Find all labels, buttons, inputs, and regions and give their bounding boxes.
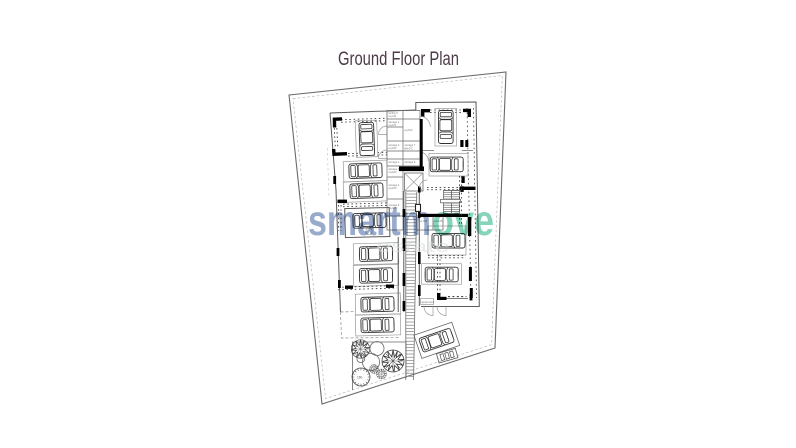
svg-text:eq.102: eq.102 xyxy=(405,128,413,132)
svg-text:160: 160 xyxy=(357,376,363,380)
svg-text:eq.104: eq.104 xyxy=(389,186,397,190)
svg-text:Ground Floor Plan: Ground Floor Plan xyxy=(338,49,459,70)
svg-text:eq.211: eq.211 xyxy=(389,114,397,118)
svg-text:storage 7: storage 7 xyxy=(405,143,416,147)
svg-text:eq.103: eq.103 xyxy=(389,170,397,174)
svg-text:BH/2*C: BH/2*C xyxy=(405,147,414,151)
svg-text:eq.101: eq.101 xyxy=(389,123,397,127)
svg-text:storage 8: storage 8 xyxy=(405,160,416,164)
svg-text:approved: approved xyxy=(422,300,435,304)
svg-text:eq.102: eq.102 xyxy=(389,146,397,150)
svg-text:storage 4: storage 4 xyxy=(389,160,400,164)
svg-text:estate: estate xyxy=(376,237,450,256)
